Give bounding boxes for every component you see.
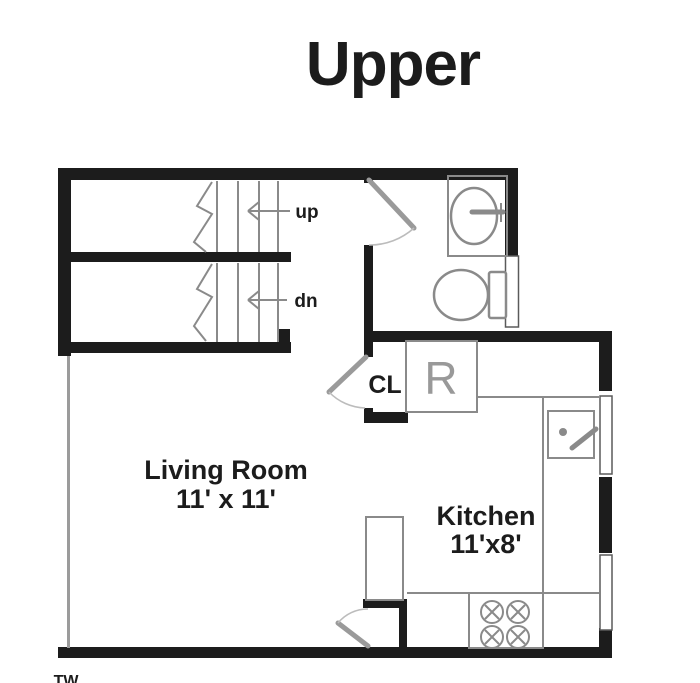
wall-stair-divider — [58, 252, 291, 262]
floor-plan-page: Upper up dn CL R Living Room 11' x 11' K… — [0, 0, 700, 683]
stairs-break-line-up — [194, 182, 212, 252]
stairs-break-line-down — [194, 264, 212, 341]
stove-box — [469, 593, 543, 648]
living-room-name: Living Room — [144, 457, 308, 484]
kitchen-door-leaf — [338, 623, 368, 646]
wall-kitchen-east-a — [599, 331, 612, 391]
stove-burners — [481, 601, 529, 648]
closet-door-leaf — [329, 357, 366, 392]
stairs-down-label: dn — [294, 292, 317, 311]
wall-stair-bottom — [58, 342, 291, 353]
window-kitchen-upper — [600, 396, 612, 474]
wall-stair-end-cap — [279, 329, 290, 345]
toilet-tank — [489, 272, 506, 318]
peninsula-counter — [366, 517, 403, 600]
bathroom-door-leaf — [369, 180, 414, 228]
corner-mark: TW — [54, 674, 79, 683]
kitchen-sink-faucet — [572, 429, 596, 448]
bathroom-door-swing — [369, 228, 414, 245]
stairs-down-flight — [194, 263, 287, 342]
windows — [506, 256, 613, 630]
wall-closet-south — [364, 412, 408, 423]
page-title: Upper — [306, 34, 480, 96]
wall-kitchen-north — [364, 331, 612, 342]
floor-plan-drawing — [0, 0, 700, 683]
kitchen-door-swing — [338, 609, 368, 623]
wall-kitchen-east-b — [599, 477, 612, 553]
refrigerator-label: R — [424, 355, 457, 401]
closet-label: CL — [368, 373, 401, 398]
toilet-bowl — [434, 270, 488, 320]
closet-door-swing — [329, 392, 365, 408]
living-room-size: 11' x 11' — [176, 486, 276, 513]
stairs-up-flight — [194, 181, 290, 252]
kitchen-name: Kitchen — [436, 503, 535, 530]
window-bathroom — [506, 256, 519, 327]
wall-kitchen-door-stub — [399, 599, 407, 655]
bathroom-sink — [451, 188, 497, 244]
window-kitchen-lower — [600, 555, 612, 630]
bathroom-fixtures — [434, 176, 507, 320]
stairs-up-label: up — [295, 203, 318, 222]
wall-kitchen-east-c — [599, 628, 612, 658]
kitchen-size: 11'x8' — [450, 531, 521, 558]
walls — [58, 168, 612, 658]
kitchen-sink-drain — [559, 428, 567, 436]
